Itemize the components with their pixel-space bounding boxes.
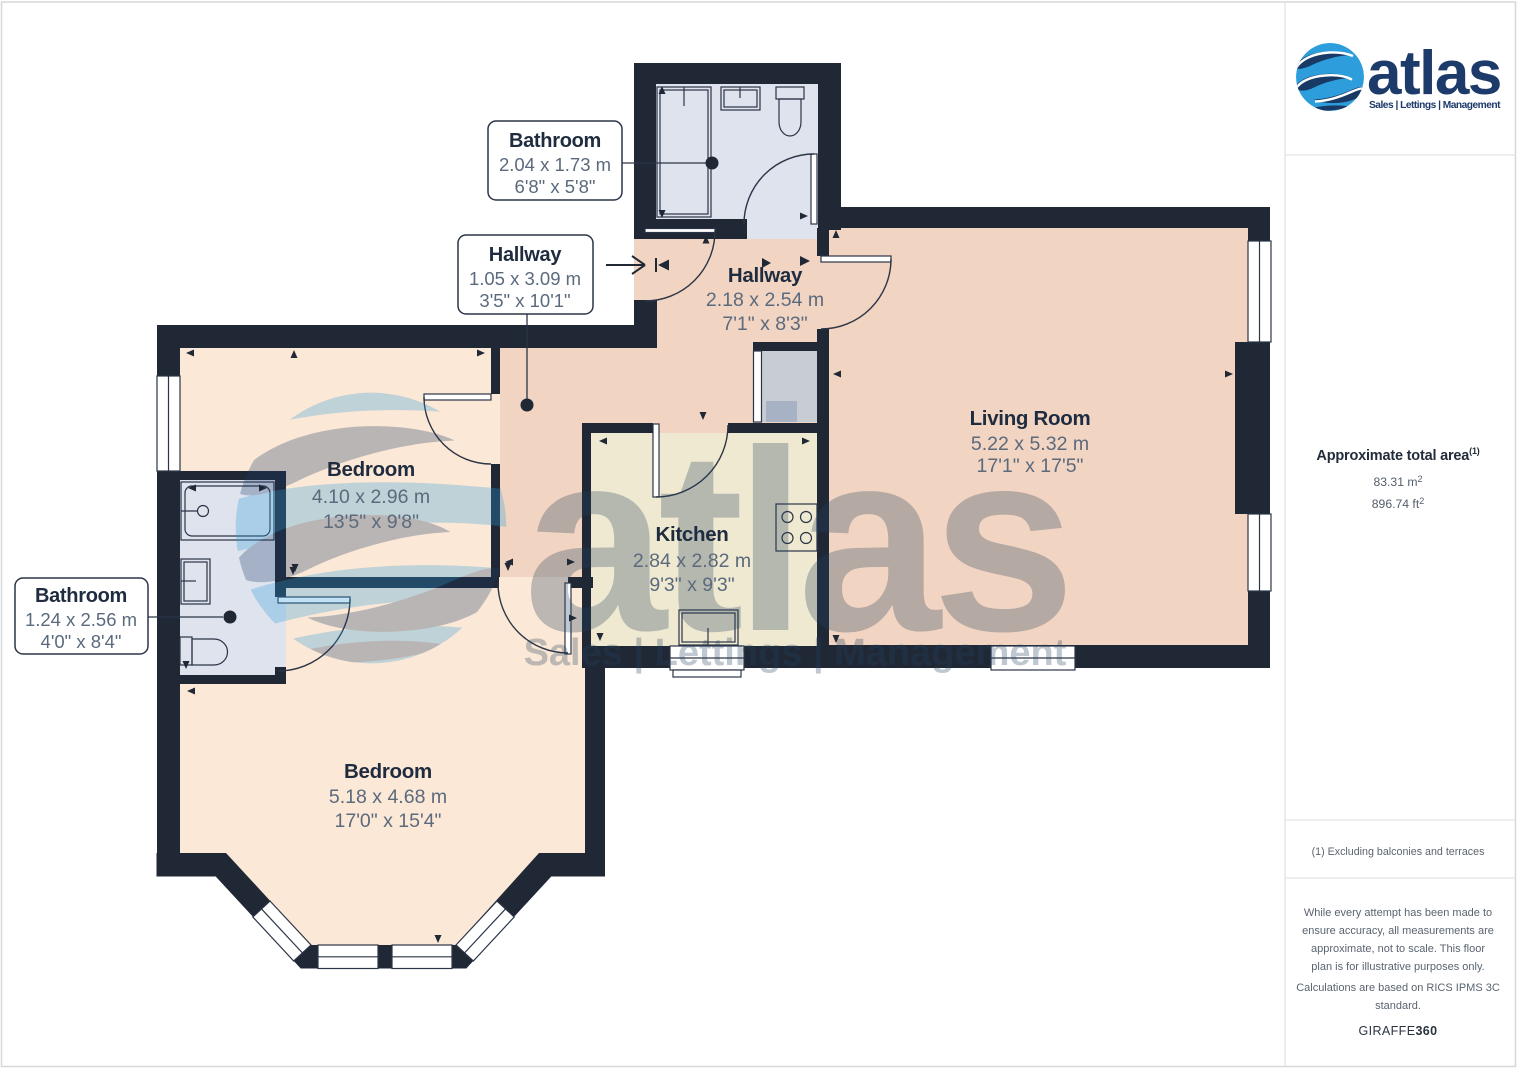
svg-text:ensure accuracy, all measureme: ensure accuracy, all measurements are xyxy=(1302,925,1494,937)
svg-text:Sales | Lettings | Management: Sales | Lettings | Management xyxy=(1369,100,1501,111)
svg-text:Kitchen: Kitchen xyxy=(655,523,728,546)
svg-text:4.10 x 2.96 m: 4.10 x 2.96 m xyxy=(312,486,430,508)
svg-text:7'1" x 8'3": 7'1" x 8'3" xyxy=(722,313,807,335)
svg-text:Bathroom: Bathroom xyxy=(35,585,127,607)
svg-text:Hallway: Hallway xyxy=(728,264,803,287)
svg-text:17'0" x 15'4": 17'0" x 15'4" xyxy=(335,810,442,832)
svg-text:Bathroom: Bathroom xyxy=(509,130,601,152)
svg-text:GIRAFFE360: GIRAFFE360 xyxy=(1358,1024,1437,1038)
svg-text:Bedroom: Bedroom xyxy=(344,760,432,783)
svg-text:2.84 x 2.82 m: 2.84 x 2.82 m xyxy=(633,550,751,572)
svg-text:While every attempt has been m: While every attempt has been made to xyxy=(1304,907,1492,919)
svg-text:17'1" x 17'5": 17'1" x 17'5" xyxy=(977,455,1084,477)
svg-text:Hallway: Hallway xyxy=(489,244,563,266)
svg-text:896.74 ft2: 896.74 ft2 xyxy=(1372,496,1424,511)
svg-text:3'5" x 10'1": 3'5" x 10'1" xyxy=(479,290,570,311)
svg-text:2.18 x 2.54 m: 2.18 x 2.54 m xyxy=(706,289,824,311)
svg-text:13'5" x 9'8": 13'5" x 9'8" xyxy=(323,511,419,533)
svg-text:1.24 x 2.56 m: 1.24 x 2.56 m xyxy=(25,609,137,630)
svg-text:Sales | Lettings | Management: Sales | Lettings | Management xyxy=(524,632,1067,674)
svg-text:6'8" x 5'8": 6'8" x 5'8" xyxy=(515,176,596,197)
svg-text:5.22 x 5.32 m: 5.22 x 5.32 m xyxy=(971,433,1089,455)
svg-text:plan is for illustrative purpo: plan is for illustrative purposes only. xyxy=(1311,961,1484,973)
svg-text:Calculations are based on RICS: Calculations are based on RICS IPMS 3C xyxy=(1296,982,1500,994)
svg-text:2.04 x 1.73 m: 2.04 x 1.73 m xyxy=(499,154,611,175)
svg-text:1.05 x 3.09 m: 1.05 x 3.09 m xyxy=(469,268,581,289)
svg-text:standard.: standard. xyxy=(1375,1000,1421,1012)
svg-text:atlas: atlas xyxy=(1367,39,1501,108)
svg-text:Living Room: Living Room xyxy=(970,407,1091,430)
svg-text:83.31 m2: 83.31 m2 xyxy=(1373,474,1422,489)
svg-text:Bedroom: Bedroom xyxy=(327,458,415,481)
svg-text:approximate, not to scale. Thi: approximate, not to scale. This floor xyxy=(1311,943,1485,955)
svg-text:4'0" x 8'4": 4'0" x 8'4" xyxy=(41,631,122,652)
svg-text:Approximate total area(1): Approximate total area(1) xyxy=(1316,446,1479,464)
svg-text:9'3" x 9'3": 9'3" x 9'3" xyxy=(649,574,734,596)
svg-text:5.18 x 4.68 m: 5.18 x 4.68 m xyxy=(329,786,447,808)
svg-text:(1) Excluding balconies and te: (1) Excluding balconies and terraces xyxy=(1312,846,1485,858)
